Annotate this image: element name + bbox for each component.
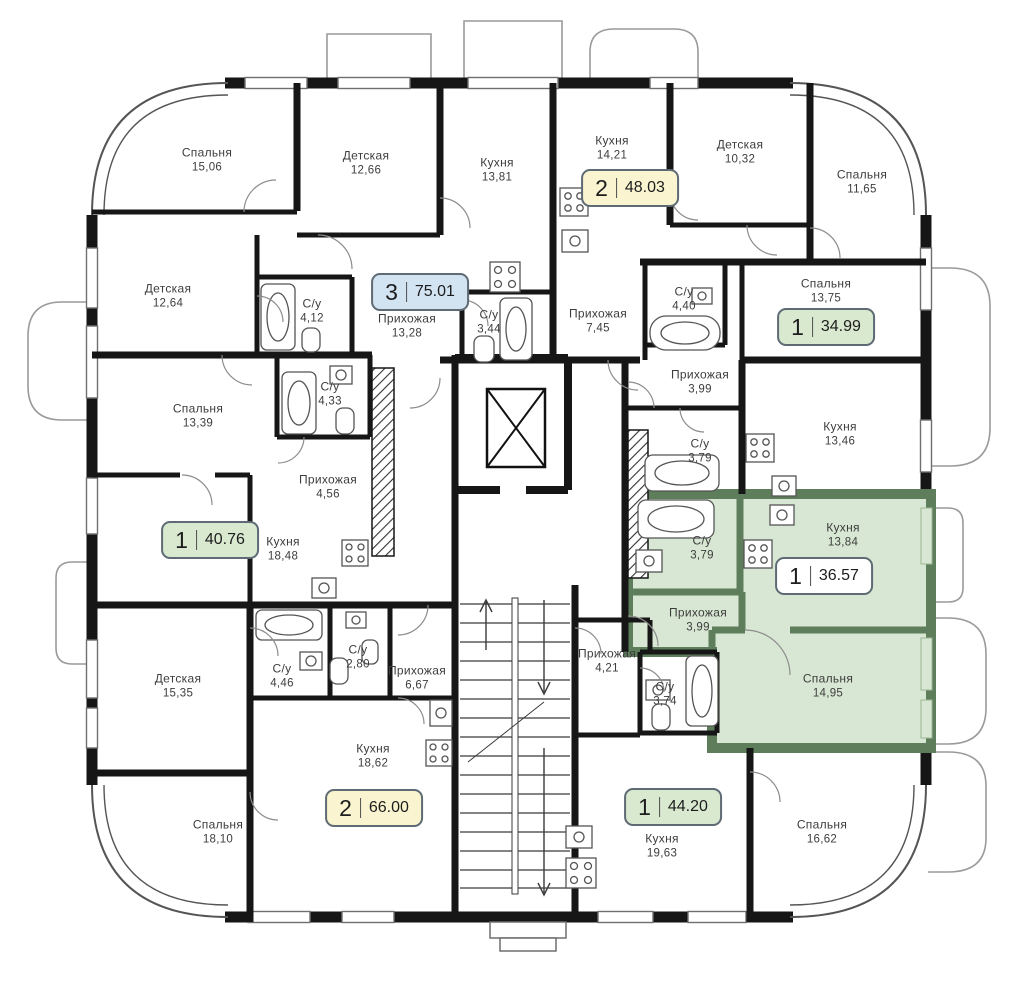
bathtub-icon (256, 610, 322, 640)
room-label: Спальня16,62 (797, 817, 847, 846)
apartment-badge-66-00[interactable]: 266.00 (325, 789, 423, 827)
sink-icon (770, 505, 794, 525)
entrance-porch (490, 922, 566, 951)
room-label: Детская15,35 (155, 671, 202, 700)
room-label: Спальня13,75 (801, 276, 851, 305)
bathtub-icon (261, 284, 295, 350)
room-label: Прихожая7,45 (569, 306, 627, 335)
room-label: Кухня18,62 (356, 741, 390, 770)
room-label: С/у4,40 (672, 284, 696, 313)
sink-icon (772, 476, 796, 496)
apartment-badge-48-03[interactable]: 248.03 (581, 169, 679, 207)
room-label: Спальня11,65 (837, 167, 887, 196)
room-label: Прихожая3,99 (671, 367, 729, 396)
stove-icon (744, 540, 772, 568)
apartment-badge-44-20[interactable]: 144.20 (624, 788, 722, 826)
room-label: Прихожая3,99 (669, 605, 727, 634)
apartment-badge-75-01[interactable]: 375.01 (371, 273, 469, 311)
sink-icon (562, 230, 588, 252)
stove-icon (426, 740, 452, 766)
stove-icon (490, 262, 520, 292)
room-label: Спальня13,39 (173, 401, 223, 430)
room-label: С/у4,46 (270, 661, 294, 690)
room-label: Кухня13,84 (826, 520, 860, 549)
sink-icon (566, 826, 592, 848)
toilet-icon (302, 328, 320, 352)
room-label: С/у3,79 (690, 533, 714, 562)
bathtub-icon (500, 298, 532, 360)
room-label: Кухня14,21 (595, 133, 629, 162)
room-label: Спальня18,10 (193, 817, 243, 846)
apartment-badge-34-99[interactable]: 134.99 (777, 308, 875, 346)
room-label: Кухня13,46 (823, 419, 857, 448)
room-label: Прихожая6,67 (388, 663, 446, 692)
bathtub-icon (638, 500, 714, 538)
floor-plan: Спальня15,06 Детская12,66 Кухня13,81 Кух… (0, 0, 1018, 1000)
stove-icon (746, 434, 774, 462)
room-label: Кухня13,81 (480, 155, 514, 184)
sink-icon (346, 612, 366, 628)
stove-icon (342, 540, 368, 566)
sink-icon (430, 700, 452, 726)
toilet-icon (474, 336, 494, 362)
sink-icon (300, 652, 322, 670)
room-label: Детская10,32 (717, 137, 764, 166)
apartment-badge-36-57[interactable]: 136.57 (775, 557, 873, 595)
room-label: С/у4,12 (300, 296, 324, 325)
bathtub-icon (650, 316, 720, 350)
room-label: Кухня19,63 (645, 831, 679, 860)
apartment-badge-40-76[interactable]: 140.76 (161, 521, 259, 559)
room-label: С/у3,79 (688, 436, 712, 465)
room-label: Прихожая4,56 (299, 472, 357, 501)
floor-plan-drawing (0, 0, 1018, 1000)
room-label: Детская12,66 (343, 148, 390, 177)
room-label: С/у2,80 (346, 642, 370, 671)
stove-icon (566, 858, 596, 888)
room-label: Прихожая13,28 (378, 311, 436, 340)
room-label: С/у4,33 (318, 379, 342, 408)
room-label: Кухня18,48 (266, 534, 300, 563)
sink-icon (312, 578, 336, 598)
toilet-icon (336, 408, 354, 434)
room-label: С/у3,74 (653, 679, 677, 708)
room-label: Детская12,64 (145, 281, 192, 310)
room-label: Спальня14,95 (803, 671, 853, 700)
sink-icon (636, 550, 662, 572)
bathtub-icon (282, 372, 316, 434)
room-label: Прихожая4,21 (578, 646, 636, 675)
room-label: Спальня15,06 (182, 145, 232, 174)
bathtub-icon (686, 656, 718, 726)
room-label: С/у3,44 (477, 307, 501, 336)
